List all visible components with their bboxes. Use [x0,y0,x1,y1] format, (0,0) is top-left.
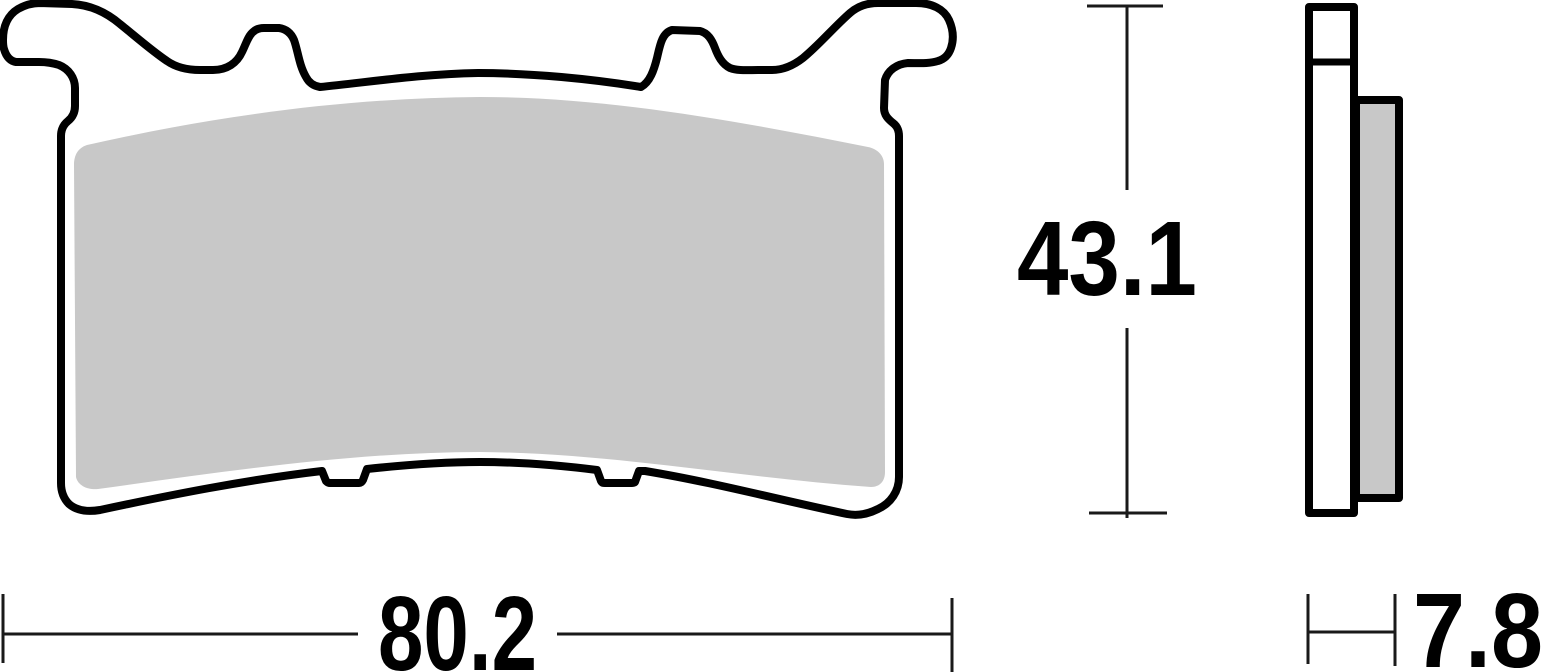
thickness-dimension-label: 7.8 [1413,572,1543,672]
backplate-side [1309,7,1354,513]
friction-material-side [1356,100,1399,498]
height-dimension: 43.1 [1017,6,1197,518]
width-dimension-label: 80.2 [378,575,537,672]
height-dimension-label: 43.1 [1017,200,1197,318]
width-dimension: 80.2 [3,575,952,672]
side-view [1306,7,1399,513]
friction-material-front [74,97,885,489]
thickness-dimension: 7.8 [1308,572,1543,672]
front-view [3,3,953,515]
brake-pad-technical-drawing: 80.2 43.1 7.8 [0,0,1551,672]
technical-drawing-canvas: 80.2 43.1 7.8 [0,0,1551,672]
